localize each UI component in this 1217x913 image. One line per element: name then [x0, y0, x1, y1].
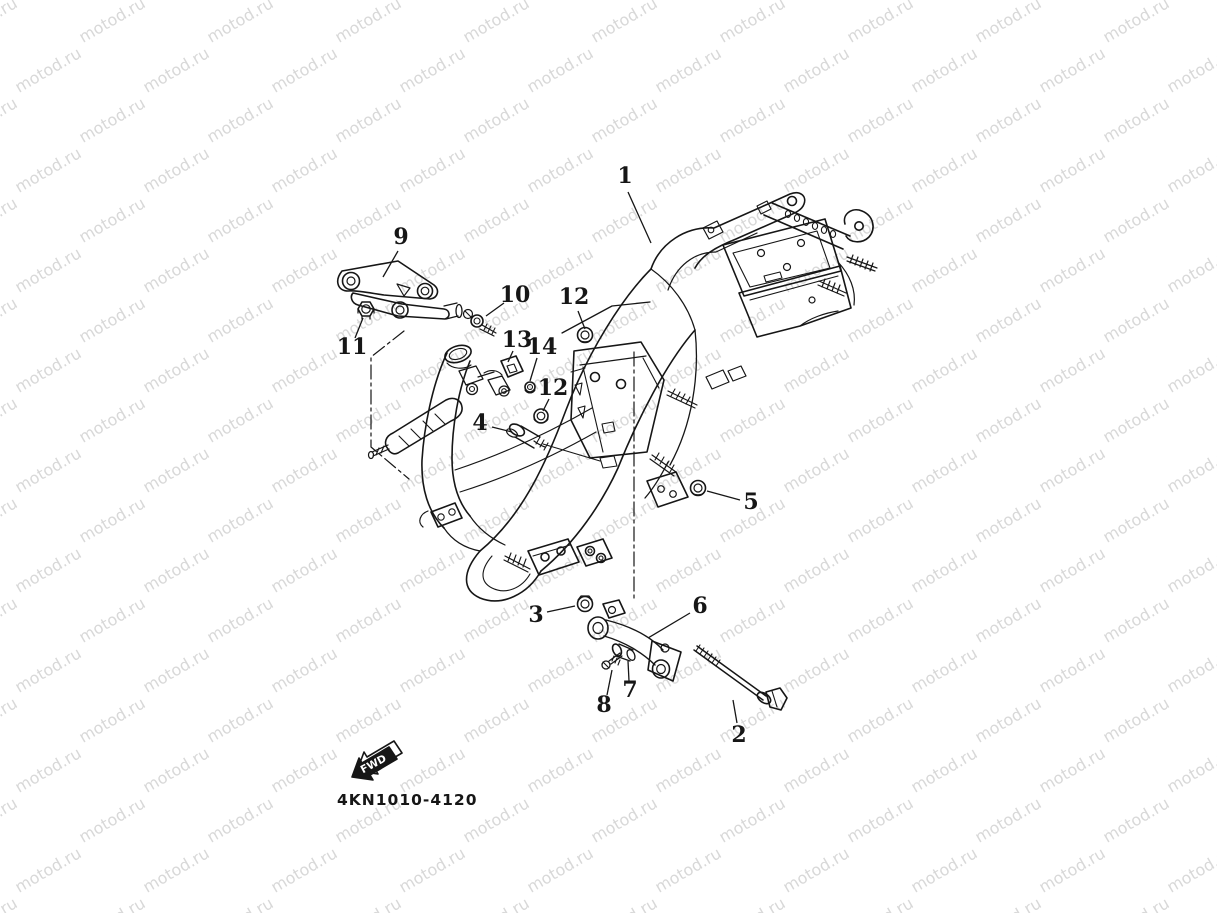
rubber-damper-strip	[369, 398, 463, 458]
nut-5	[691, 481, 706, 496]
drawing-code: 4KN1010-4120	[337, 791, 477, 809]
callout-6: 6	[648, 593, 708, 638]
callout-1: 1	[617, 163, 651, 243]
callout-5-leader	[707, 491, 740, 500]
callout-2: 2	[731, 700, 746, 748]
fwd-arrow: FWD	[352, 741, 402, 780]
callout-12b: 12	[538, 375, 569, 411]
callout-3-label: 3	[528, 602, 543, 628]
callout-9: 9	[383, 224, 409, 277]
callout-12a-leader	[578, 311, 585, 329]
callout-12b-label: 12	[538, 375, 569, 401]
callout-6-leader	[648, 613, 690, 638]
callout-3-leader	[547, 606, 575, 612]
callout-7: 7	[622, 661, 637, 703]
callout-3: 3	[528, 602, 575, 628]
callout-12a-label: 12	[559, 284, 590, 310]
callout-5: 5	[707, 489, 759, 515]
callout-10-label: 10	[500, 282, 531, 308]
callout-9-label: 9	[393, 224, 408, 250]
bracket-9	[338, 261, 462, 319]
frame-drawing	[338, 193, 877, 710]
parts-diagram-page: motod.rumotod.rumotod.rumotod.rumotod.ru…	[0, 0, 1217, 913]
rear-lower-bracket	[647, 453, 688, 507]
stud-right-upper	[847, 255, 877, 271]
bolt-4	[505, 422, 548, 450]
callout-1-label: 1	[617, 163, 632, 189]
position-line	[371, 331, 409, 479]
callout-4: 4	[472, 410, 512, 436]
callout-5-label: 5	[743, 489, 758, 515]
callout-4-label: 4	[472, 410, 487, 436]
stud-right-lower	[818, 279, 846, 296]
callout-1-leader	[628, 192, 651, 243]
callout-2-label: 2	[731, 722, 746, 748]
callout-7-label: 7	[622, 677, 637, 703]
callout-2-leader	[733, 700, 737, 723]
nut-3	[578, 596, 593, 612]
callout-14-leader	[530, 358, 537, 381]
nut-14	[525, 382, 535, 393]
collar-7	[611, 643, 637, 662]
callout-14: 14	[527, 334, 558, 381]
plate-13	[501, 356, 523, 377]
floor-plate-bolts	[577, 539, 612, 566]
callout-8: 8	[596, 670, 612, 718]
nut-11	[358, 302, 374, 319]
callout-14-label: 14	[527, 334, 558, 360]
callout-6-label: 6	[692, 593, 707, 619]
bolt-2	[694, 645, 787, 710]
nut-12-lower	[534, 409, 548, 423]
link-6	[588, 600, 681, 681]
callout-10: 10	[486, 282, 530, 316]
nut-12-upper	[578, 328, 593, 343]
callout-12a: 12	[559, 284, 590, 329]
rear-subframe	[651, 193, 877, 337]
callout-8-label: 8	[596, 692, 611, 718]
frame-svg: FWD 4KN1010-4120 123456789101112131412	[0, 0, 1217, 913]
bolt-10	[464, 310, 497, 337]
callout-11-label: 11	[337, 334, 368, 360]
callout-11: 11	[337, 318, 368, 360]
